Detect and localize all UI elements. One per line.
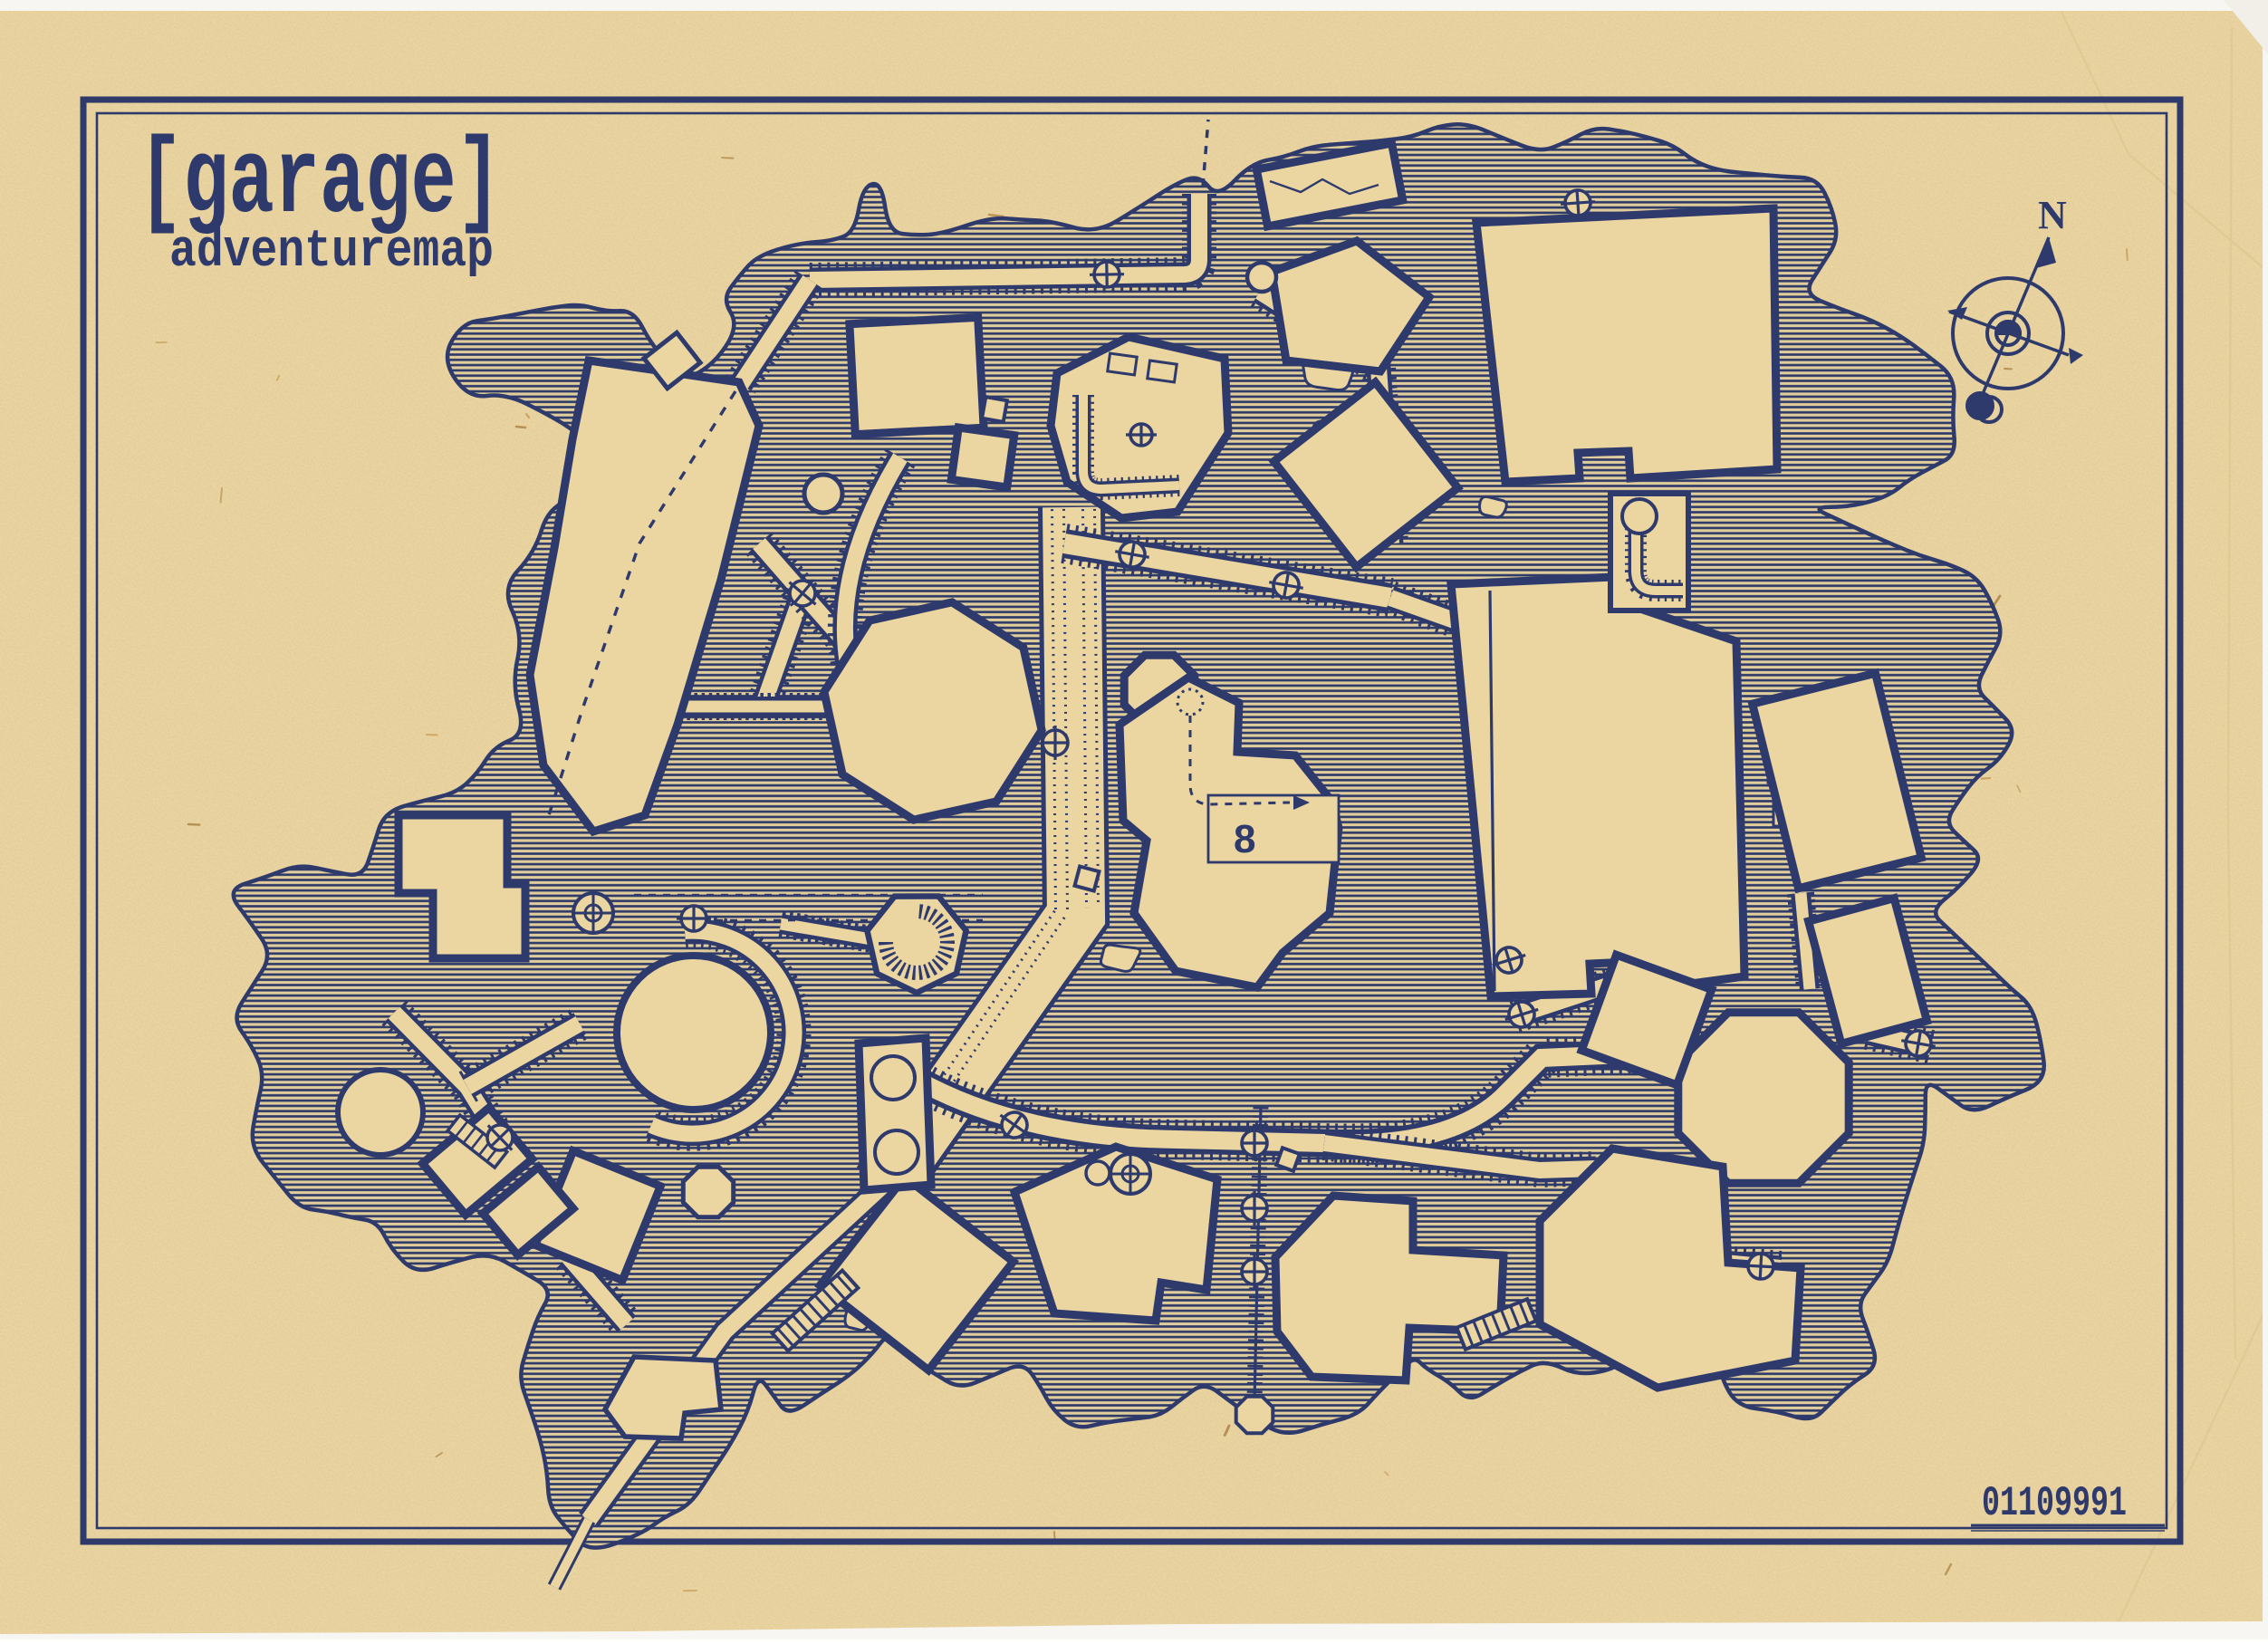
svg-text:N: N — [2038, 193, 2067, 237]
svg-text:adventuremap: adventuremap — [169, 223, 494, 282]
svg-text:01109991: 01109991 — [1982, 1480, 2127, 1527]
svg-text:8: 8 — [1234, 817, 1255, 861]
